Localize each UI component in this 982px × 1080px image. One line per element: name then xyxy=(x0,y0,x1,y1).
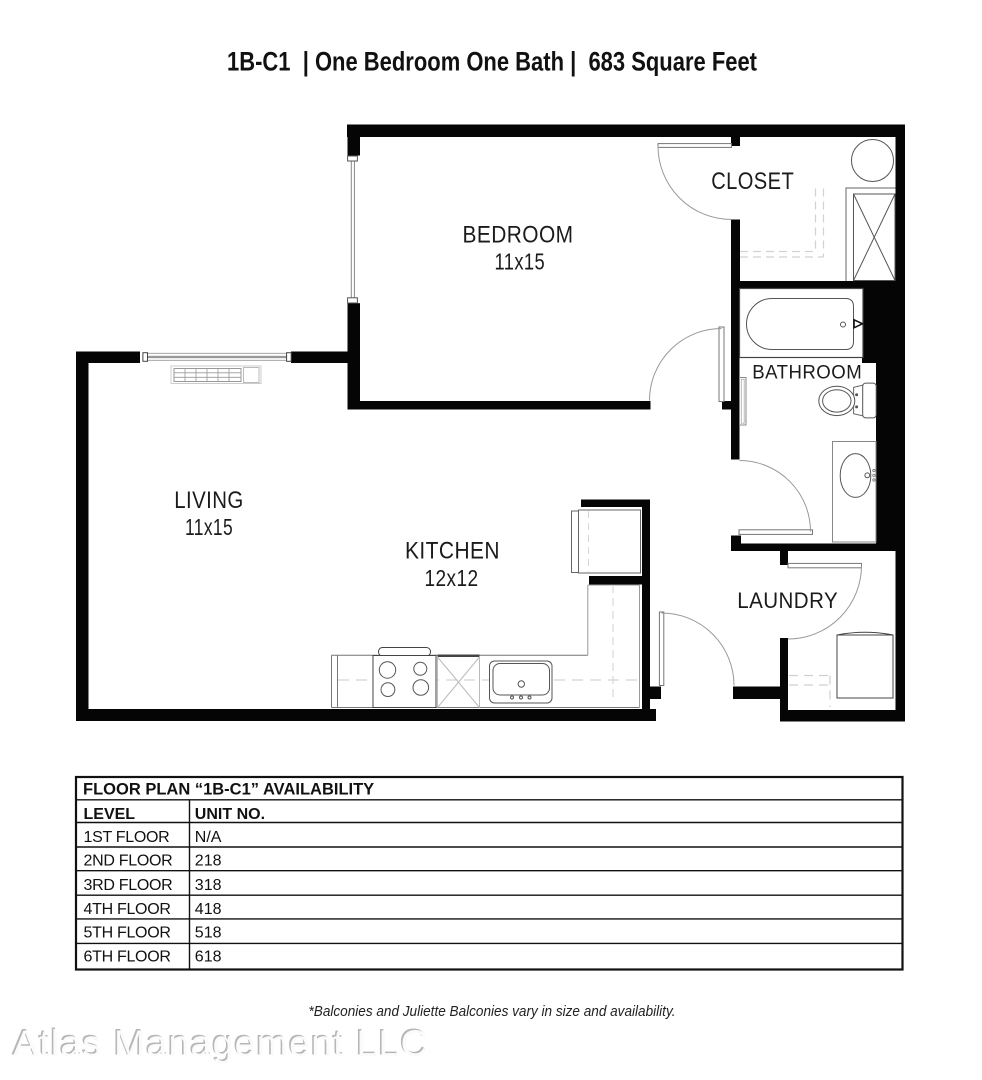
svg-text:1B-C1 | One Bedroom One Bath: 1B-C1 | One Bedroom One Bath | 683 Squar… xyxy=(227,47,757,77)
svg-text:618: 618 xyxy=(195,948,222,965)
svg-text:LEVEL: LEVEL xyxy=(84,806,136,823)
svg-text:BEDROOM: BEDROOM xyxy=(463,222,574,249)
svg-text:518: 518 xyxy=(195,925,222,942)
svg-text:CLOSET: CLOSET xyxy=(711,168,794,195)
svg-text:6TH FLOOR: 6TH FLOOR xyxy=(84,948,171,965)
svg-text:1ST FLOOR: 1ST FLOOR xyxy=(84,829,170,846)
svg-text:318: 318 xyxy=(195,877,222,894)
svg-text:*Balconies and Juliette Balcon: *Balconies and Juliette Balconies vary i… xyxy=(309,1004,676,1020)
svg-text:FLOOR PLAN “1B-C1” AVAILABILIT: FLOOR PLAN “1B-C1” AVAILABILITY xyxy=(83,780,374,798)
svg-text:KITCHEN: KITCHEN xyxy=(405,538,500,565)
svg-text:LIVING: LIVING xyxy=(174,487,244,514)
svg-text:Atlas Management LLC: Atlas Management LLC xyxy=(13,1022,429,1064)
svg-text:BATHROOM: BATHROOM xyxy=(752,361,862,383)
svg-text:218: 218 xyxy=(195,852,222,869)
svg-text:12x12: 12x12 xyxy=(425,565,479,591)
svg-text:N/A: N/A xyxy=(195,829,222,846)
svg-text:3RD FLOOR: 3RD FLOOR xyxy=(84,877,173,894)
svg-text:5TH FLOOR: 5TH FLOOR xyxy=(84,925,171,942)
svg-text:418: 418 xyxy=(195,901,222,918)
svg-text:11x15: 11x15 xyxy=(495,249,546,275)
svg-text:LAUNDRY: LAUNDRY xyxy=(737,588,838,613)
svg-text:UNIT NO.: UNIT NO. xyxy=(195,806,265,823)
svg-text:2ND FLOOR: 2ND FLOOR xyxy=(84,852,173,869)
svg-text:4TH FLOOR: 4TH FLOOR xyxy=(84,901,171,918)
svg-text:11x15: 11x15 xyxy=(185,514,233,540)
